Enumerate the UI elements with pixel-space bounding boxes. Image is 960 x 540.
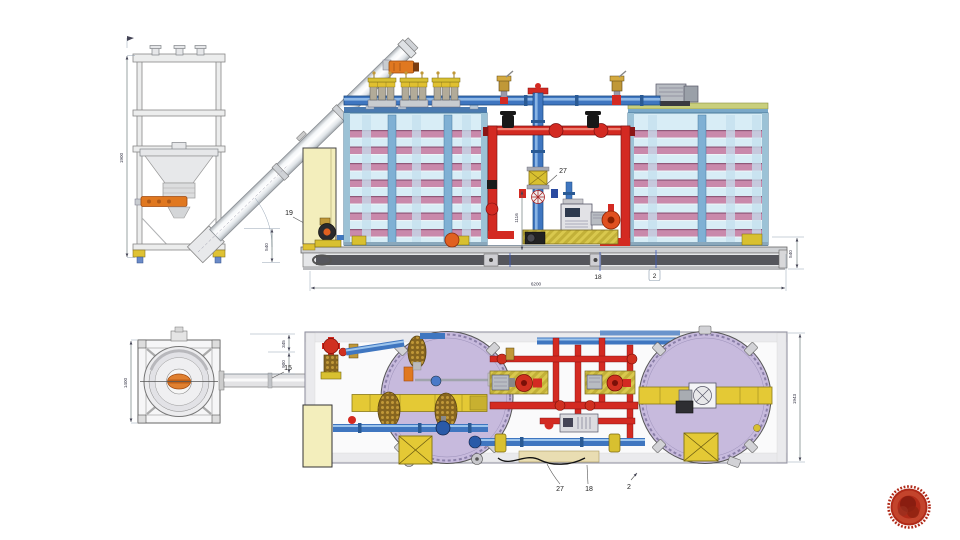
frame-plan: [138, 327, 220, 423]
internal-pipe: [444, 115, 452, 243]
feeder-screw-inlet: [135, 197, 190, 219]
junction-box-plan: [560, 414, 598, 432]
manhole-hatch-left: [399, 436, 432, 464]
callout-18: 18: [594, 274, 602, 281]
control-panel: [561, 199, 592, 231]
skid-width-dim: 1943: [792, 393, 797, 404]
dim-skid-width: 1943: [788, 333, 805, 462]
aux-pump: [525, 232, 545, 244]
callout-18-plan: 18: [585, 486, 593, 493]
dim-center-height: 1116: [514, 191, 522, 250]
valve-handwheel: [500, 111, 516, 128]
callout-27: 27: [559, 168, 567, 175]
mini-valve: [551, 189, 558, 198]
drip-tray-plan: [519, 451, 599, 462]
drawing-canvas: 1900 540 19: [0, 0, 960, 540]
agitator-bridge-left: [352, 395, 487, 412]
overall-length-dim: 6200: [531, 282, 542, 287]
callout-2: 2: [653, 273, 657, 280]
mini-valve: [519, 189, 526, 198]
orange-ball-valve: [445, 233, 459, 247]
inline-yellow-valve: [527, 167, 549, 189]
discharge-height-dim: 540: [264, 243, 269, 251]
pump-train-2: [585, 371, 635, 394]
callout-2-plan: 2: [627, 484, 631, 491]
frame-height-dim: 1900: [119, 152, 124, 163]
callout-27-plan: 27: [556, 486, 564, 493]
side-cabinet-plan: [303, 405, 332, 467]
agitator-motor-elevation: [656, 84, 698, 106]
flex-hose-coil: [378, 392, 400, 428]
callout-15: 15: [284, 365, 292, 372]
right-height-dim: 540: [788, 250, 793, 258]
frame-width-dim: 1400: [123, 377, 128, 388]
right-tank: [628, 103, 768, 245]
offset-top-dim: 345: [281, 340, 286, 348]
engineering-drawing-page: 1900 540 19: [0, 0, 960, 540]
logo-stamp: [889, 487, 930, 528]
dosing-pump: [591, 204, 620, 229]
lifting-lugs: [150, 46, 206, 56]
right-tank-plan: [639, 326, 772, 468]
internal-pipe: [698, 115, 706, 243]
internal-pipe: [388, 115, 396, 243]
elevation-view: 1900 540 19: [119, 34, 804, 291]
callout-19: 19: [285, 210, 293, 217]
valve-handwheel: [585, 111, 601, 128]
dim-frame-width: 1400: [123, 340, 137, 423]
left-tank: [344, 103, 487, 245]
hopper: [140, 143, 218, 199]
manhole-hatch-right: [684, 433, 718, 461]
center-blue-riser: [528, 83, 548, 235]
star-valve: [532, 191, 545, 204]
plan-view: 1400 345 900 15: [123, 326, 805, 493]
pump-train-1: [490, 371, 548, 394]
center-height-dim: 1116: [514, 213, 519, 223]
skid-base: [301, 246, 787, 271]
